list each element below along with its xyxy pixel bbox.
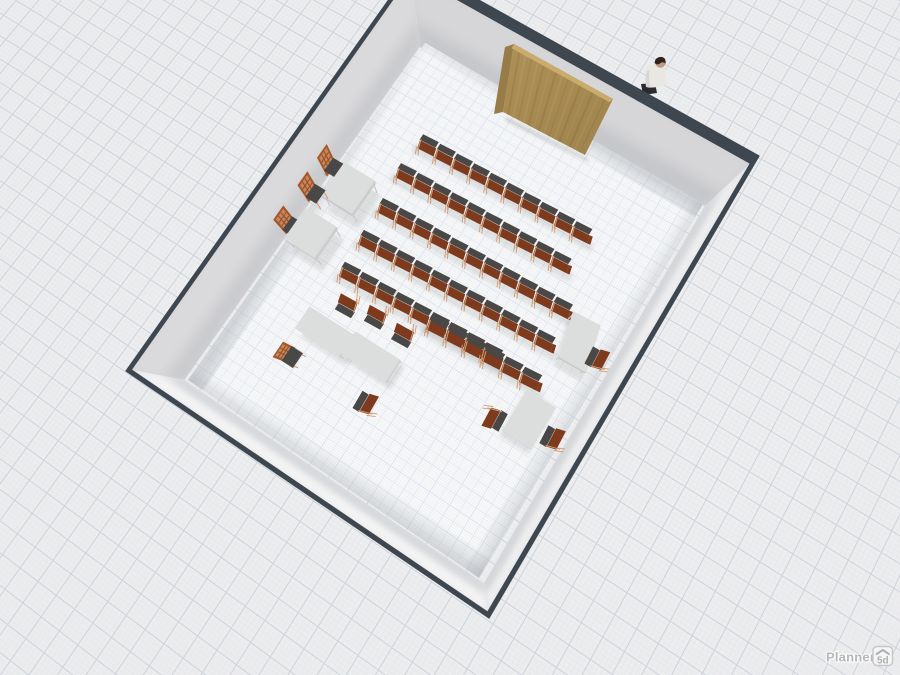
svg-text:5d: 5d [877,656,889,667]
svg-text:Planner: Planner [826,650,875,665]
